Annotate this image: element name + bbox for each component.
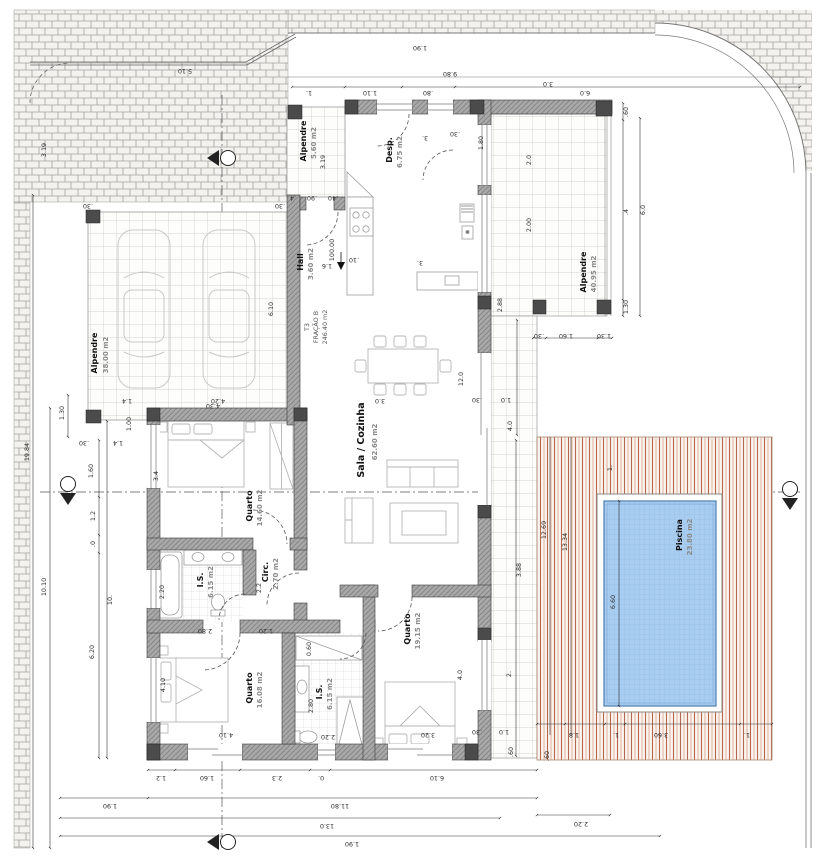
dim-label: 4.0 [506,421,514,431]
section-marker [207,834,236,850]
window-east-desp [478,125,491,185]
dim-label: 1.60 [87,464,95,478]
dim-label: .30 [472,728,482,736]
section-marker [782,482,798,511]
room-area-label: 19.15 m2 [414,613,422,650]
slider-south-3 [388,744,452,760]
dim-label: 2.20 [158,585,166,599]
dim-label: 1.30 [597,332,611,340]
room-name-label: I.S. [196,573,205,588]
dim-label: .60 [543,751,551,761]
room-name-label: Hall [296,253,305,271]
dim-label: 3. [422,134,428,142]
section-marker [60,477,76,506]
dim-label: 1.30 [622,300,630,314]
window-top [428,100,453,114]
dim-label: 12.0 [457,372,465,386]
dim-label: 1.2 [89,511,97,521]
dim-label: .30 [472,396,482,404]
dim-label: 1.30 [58,406,66,420]
dim-label: .30 [534,332,544,340]
room-area-label: 16.08 m2 [256,672,264,709]
room-area-label: 14.60 m2 [256,490,264,527]
dim-label: 1.10 [363,89,377,97]
room-name-label: Circ. [261,562,270,582]
level-marker [337,252,345,270]
carport [88,212,287,420]
dim-label: 13.0 [320,822,334,830]
room-area-label: 40.95 m2 [590,256,598,293]
dim-label: 1. [606,465,614,471]
dim-label: .30 [275,202,285,210]
dim-label: 1.90 [103,802,117,810]
dim-label: 1.4 [113,439,123,447]
bedroom1-furniture [158,421,293,489]
window-top-door [377,100,412,114]
dim-label: 1. [306,89,312,97]
dim-label: 2.2 [255,583,263,593]
room-area-label: 2.70 m2 [272,558,280,590]
room-area-label: 5.60 m2 [310,127,318,159]
dim-label: 1.4 [122,397,132,405]
dim-label: 1.20 [259,627,273,635]
dim-label: 3.0 [375,397,385,405]
room-area-label: 3.60 m2 [307,248,315,280]
dim-label: 2.80 [198,627,212,635]
window-east-kitchen [478,195,491,292]
dim-label: 2.20 [321,733,335,741]
room-name-label: Quarto [403,613,412,645]
dim-label: 5.10 [178,67,192,75]
dim-label: 3.0 [543,80,553,88]
dim-label: 6.20 [88,645,96,659]
dim-label: 6.10 [430,774,444,782]
coffee-table [402,511,446,535]
dim-label: 13.34 [561,533,569,551]
room-area-label: 38.00 m2 [102,337,110,374]
dim-label: 1.0 [501,396,511,404]
dim-label: 1.60 [200,774,214,782]
dim-label: 1.2 [156,774,166,782]
dim-label: 1.8 [569,731,579,739]
room-name-label: Desp. [385,137,394,163]
dim-label: 4.10 [219,731,233,739]
room-area-label: 62.60 m2 [371,424,379,461]
window-south-2 [318,744,335,760]
dim-label: 2.0 [525,155,533,165]
window-east-q3 [478,640,491,710]
dim-label: 1.90 [413,44,427,52]
vanity [184,550,242,565]
corner-cabinet [347,172,373,197]
room-name-label: Alpendre [299,120,308,161]
fraction-label-line2: FRAÇÃO B [311,311,320,343]
sofa [387,460,458,487]
dim-label: 2.88 [496,298,504,312]
dim-label: 1.60 [559,332,573,340]
room-area-label: 6.75 m2 [396,136,404,168]
appliance [460,204,474,222]
dim-label: 9.80 [443,70,457,78]
dim-label: 2. [505,671,513,677]
stove [350,208,373,236]
dim-label: 10. [106,595,114,605]
dim-label: .30 [83,202,93,210]
dim-label: 4.30 [206,402,220,410]
dim-label: .30 [79,439,89,447]
fraction-label-line3: 246.40 m2 [321,310,329,345]
room-name-label: I.S. [315,685,324,700]
dim-label: .4 [622,209,630,215]
dim-label: 2.20 [574,820,588,828]
room-area-label: 23.80 m2 [686,519,694,556]
dining-table [368,349,438,383]
dim-label: .60 [507,747,515,757]
kitchen [347,172,478,295]
dim-label: 2.3 [272,774,282,782]
dim-label: .80 [423,89,433,97]
dining-set [355,336,451,395]
dim-label: 11.80 [331,802,349,810]
dim-label: .90 [307,194,317,202]
slider-south-1 [188,744,242,760]
fraction-label-line1: T3 [303,323,311,332]
dim-label: 6.0 [639,205,647,215]
dim-label: 3.4 [152,471,160,481]
dim-label: 0.60 [305,642,313,656]
slider-east-sala [478,353,491,505]
dim-label: .60 [622,107,630,117]
room-area-label: 6.15 m2 [326,678,334,710]
floor-plan-canvas: 1.90 9.80 5.10 1. 1.10 .80 6.0 1.2 1.60 … [0,0,816,856]
pool-water [604,501,716,706]
dim-label: 1.90 [345,840,359,848]
dim-label: 6.0 [580,89,590,97]
dim-label: 3.19 [40,143,48,157]
dim-label: 2.00 [525,218,533,232]
dim-label: 19.84 [23,443,31,461]
dim-label: .4 [290,194,296,202]
dim-label: 1.80 [477,136,485,150]
dim-label: 6.10 [267,302,275,316]
dim-label: .10 [349,256,359,264]
toilet [299,731,317,743]
dim-label: 100.00 [328,239,336,261]
dim-label: 3. [417,259,423,267]
dim-label: 1.6 [322,262,332,270]
dim-label: 0. [318,774,324,782]
room-area-label: 6.15 m2 [207,566,215,598]
dim-label: 4.10 [159,678,167,692]
dim-label: 6.60 [609,595,617,609]
dim-label: 12.69 [540,521,548,539]
dim-label: 1. [613,731,619,739]
dim-label: .40 [328,194,338,202]
dim-label: 1.00 [125,417,133,431]
pool-deck [537,437,772,760]
room-name-label: Quarto [245,672,254,704]
dim-label: .30 [450,130,460,138]
dim-label: 3.60 [654,731,668,739]
room-name-label: Sala / Cozinha [356,402,367,477]
room-name-label: Piscina [675,519,684,551]
bedroom3-furniture [373,682,467,748]
kitchen-island [417,272,478,290]
dim-label: .0 [89,541,97,547]
pantry-door-arc [423,150,453,180]
dim-label: 3.19 [319,155,327,169]
dim-label: 10.10 [40,578,48,596]
dim-label: 4.0 [456,670,464,680]
loveseat [345,498,373,543]
dim-label: 3.20 [421,731,435,739]
bedroom2-furniture [158,646,228,733]
dim-label: 1. [744,731,750,739]
dim-label: 2.80 [307,699,315,713]
room-name-label: Quarto [245,490,254,522]
room-name-label: Alpendre [579,251,588,292]
room-name-label: Alpendre [90,332,99,373]
dim-label: 1.0 [499,728,509,736]
dim-label: 3.88 [515,563,523,577]
